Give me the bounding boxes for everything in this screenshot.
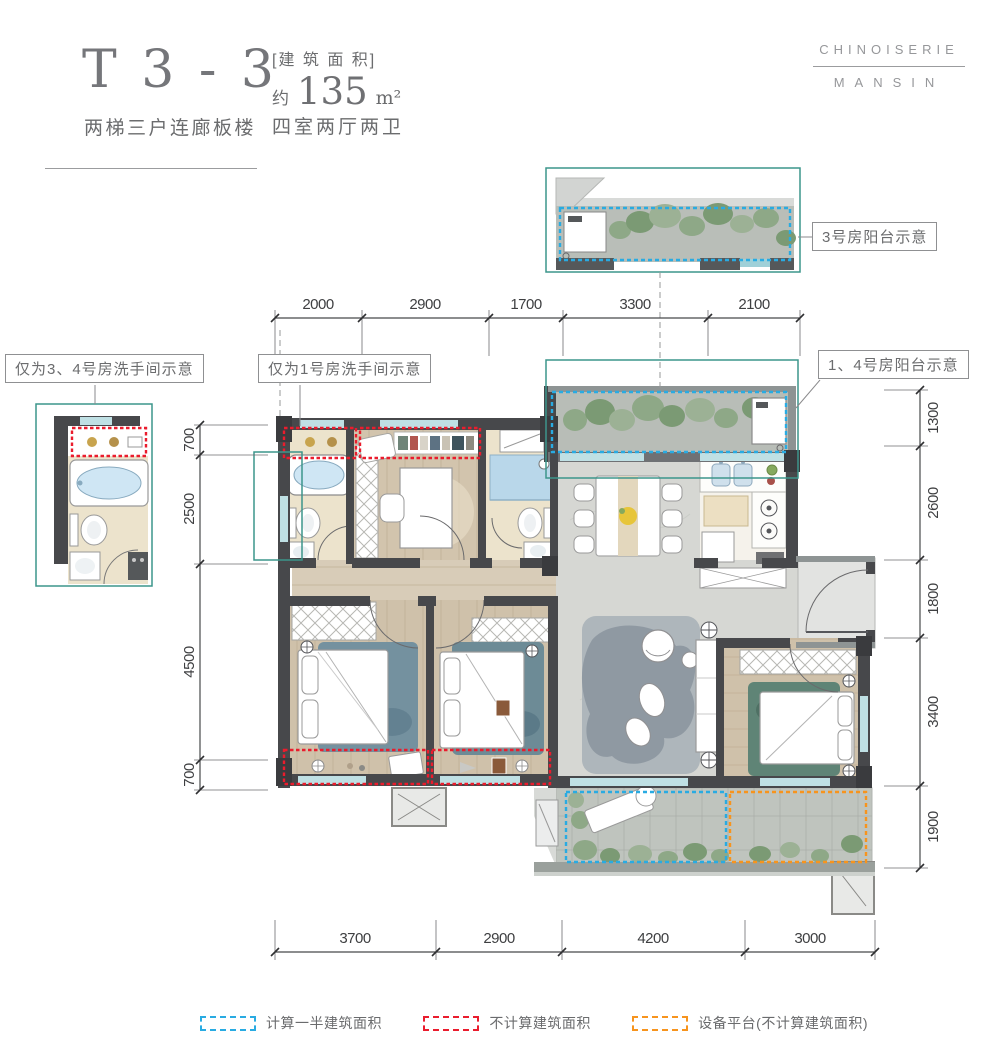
legend-item-equipment: 设备平台(不计算建筑面积) <box>632 1013 868 1033</box>
dim-top-5: 2100 <box>719 296 789 314</box>
dim-top-4: 3300 <box>600 296 670 314</box>
legend-label-excluded: 不计算建筑面积 <box>489 1013 591 1033</box>
dim-bottom-3: 4200 <box>618 930 688 948</box>
callout-bath-rooms34: 仅为3、4号房洗手间示意 <box>5 354 204 383</box>
dim-top-1: 2000 <box>283 296 353 314</box>
legend-swatch-red <box>423 1016 479 1031</box>
legend: 计算一半建筑面积 不计算建筑面积 设备平台(不计算建筑面积) <box>200 1013 868 1033</box>
dim-left-3: 4500 <box>181 627 199 697</box>
bedroom-4 <box>740 644 856 777</box>
dim-left-4: 700 <box>181 740 199 810</box>
callout-balcony-room3: 3号房阳台示意 <box>812 222 937 251</box>
bathroom-detail-rooms34 <box>36 404 152 586</box>
legend-label-half-area: 计算一半建筑面积 <box>266 1013 382 1033</box>
legend-item-excluded: 不计算建筑面积 <box>423 1013 591 1033</box>
dim-top-3: 1700 <box>491 296 561 314</box>
dim-right-3: 1800 <box>925 564 943 634</box>
dim-left-2: 2500 <box>181 474 199 544</box>
legend-swatch-blue <box>200 1016 256 1031</box>
balcony-detail-room3 <box>546 168 800 272</box>
dim-top-2: 2900 <box>390 296 460 314</box>
legend-label-equipment: 设备平台(不计算建筑面积) <box>698 1013 868 1033</box>
dim-right-1: 1300 <box>925 383 943 453</box>
dim-bottom-4: 3000 <box>775 930 845 948</box>
dim-right-4: 3400 <box>925 677 943 747</box>
living-room <box>582 616 722 774</box>
dim-right-2: 2600 <box>925 468 943 538</box>
dim-bottom-1: 3700 <box>320 930 390 948</box>
legend-swatch-orange <box>632 1016 688 1031</box>
dining-area <box>574 476 682 556</box>
floor-plan-svg <box>0 0 1000 1040</box>
dim-left-1: 700 <box>181 405 199 475</box>
legend-item-half-area: 计算一半建筑面积 <box>200 1013 382 1033</box>
dim-bottom-2: 2900 <box>464 930 534 948</box>
dim-right-5: 1900 <box>925 792 943 862</box>
callout-balcony-room14: 1、4号房阳台示意 <box>818 350 969 379</box>
callout-bath-room1: 仅为1号房洗手间示意 <box>258 354 431 383</box>
floorplan-page: { "header": { "unit_code": "T 3 - 3", "u… <box>0 0 1000 1040</box>
